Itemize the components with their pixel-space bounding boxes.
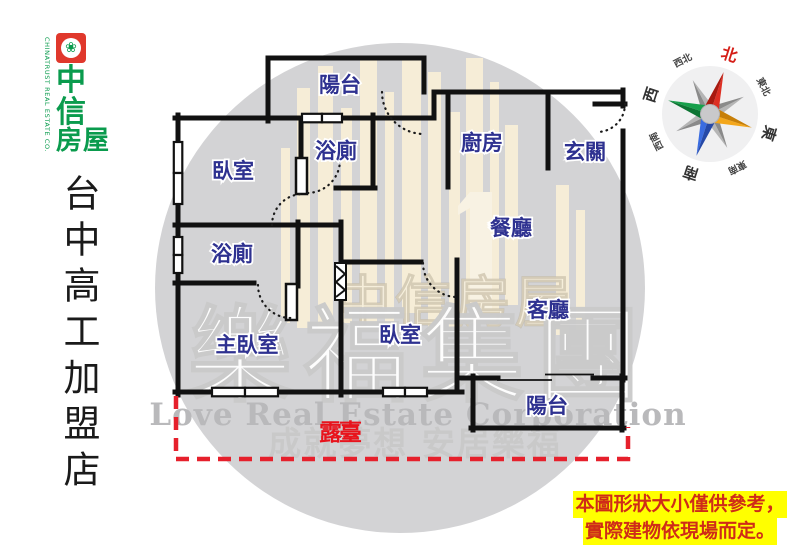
compass-label-northeast: 東北: [753, 75, 773, 99]
room-label-foyer: 玄關: [564, 140, 606, 164]
room-label-dining: 餐廳: [490, 216, 532, 240]
brand-company-en: CHINATRUST REAL ESTATE CO.: [43, 37, 51, 152]
disclaimer-note: 本圖形狀大小僅供參考， 實際建物依現場而定。: [562, 491, 798, 545]
window-symbol: [302, 114, 322, 123]
window-symbol: [405, 388, 427, 397]
window-symbol: [174, 142, 183, 173]
room-label-living-room: 客廳: [527, 298, 569, 322]
brand-logo-text: 中 信 房屋: [56, 65, 136, 155]
logo-char: 信: [56, 97, 136, 129]
compass-rose-icon: 北 東北 東 東南 南 西南 西 西北: [640, 43, 780, 184]
store-name: 台中高工加盟店: [51, 174, 105, 514]
window-symbol: [322, 114, 342, 123]
door-leaf: [296, 158, 307, 194]
brand-logo: ❀ 中 信 房屋: [56, 33, 136, 155]
flower-knot-icon: ❀: [61, 38, 81, 58]
room-label-kitchen: 廚房: [461, 131, 503, 155]
room-label-bath-1: 浴廁: [315, 139, 357, 163]
room-label-bedroom-2: 臥室: [379, 323, 421, 347]
logo-char: 房屋: [56, 128, 136, 155]
compass-label-south: 南: [681, 162, 701, 184]
compass-label-west: 西: [640, 85, 662, 105]
compass-label-east: 東: [758, 123, 780, 143]
disclaimer-line-2: 實際建物依現場而定。: [583, 518, 777, 545]
room-label-balcony-bottom: 陽台: [526, 394, 568, 418]
window-symbol: [212, 388, 245, 397]
closet-symbol: [335, 263, 346, 300]
compass-label-southeast: 東南: [726, 157, 750, 177]
logo-char: 中: [56, 65, 136, 97]
brand-logo-icon: ❀: [56, 33, 86, 63]
compass-label-northwest: 西北: [672, 51, 695, 71]
room-label-master-bedroom: 主臥室: [216, 333, 279, 357]
compass-label-north: 北: [719, 43, 740, 66]
window-symbol: [174, 255, 183, 273]
window-symbol: [383, 388, 405, 397]
room-label-bedroom-1: 臥室: [212, 159, 254, 183]
door-leaf: [286, 284, 297, 320]
room-label-balcony-top: 陽台: [319, 73, 361, 97]
terrace-label: 露臺: [319, 420, 362, 446]
window-symbol: [174, 173, 183, 204]
disclaimer-line-1: 本圖形狀大小僅供參考，: [573, 491, 786, 518]
floorplan-page: 中信房屋 樂福集團 Love Real Estate Corporation 成…: [0, 0, 800, 553]
room-label-bath-2: 浴廁: [211, 242, 253, 266]
compass-label-southwest: 西南: [647, 130, 667, 153]
window-symbol: [174, 237, 183, 255]
window-symbol: [245, 388, 278, 397]
